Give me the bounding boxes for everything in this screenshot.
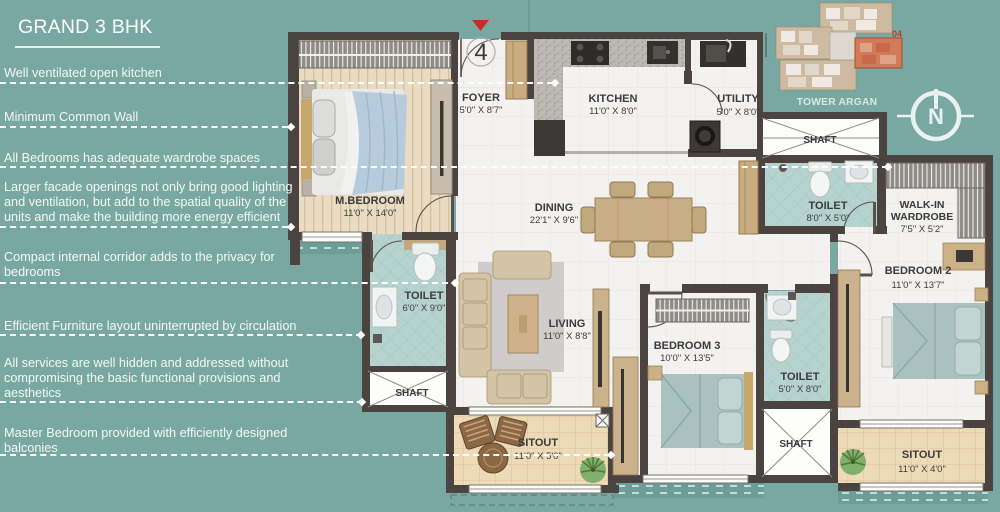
- svg-text:WARDROBE: WARDROBE: [891, 211, 953, 223]
- svg-text:11'0" X 13'7": 11'0" X 13'7": [892, 280, 945, 291]
- svg-text:TOILET: TOILET: [809, 200, 848, 212]
- svg-text:5'0" X 8'7": 5'0" X 8'7": [459, 105, 502, 116]
- svg-text:11'0" X 4'0": 11'0" X 4'0": [898, 464, 946, 475]
- svg-text:BEDROOM 3: BEDROOM 3: [654, 340, 721, 352]
- svg-text:7'5" X 5'2": 7'5" X 5'2": [900, 224, 943, 235]
- svg-text:UTILITY: UTILITY: [717, 93, 759, 105]
- svg-text:WALK-IN: WALK-IN: [900, 199, 945, 211]
- svg-text:10'0" X 13'5": 10'0" X 13'5": [660, 353, 714, 364]
- svg-text:DINING: DINING: [535, 202, 574, 214]
- svg-text:11'0" X 8'0": 11'0" X 8'0": [589, 106, 637, 117]
- svg-text:SHAFT: SHAFT: [803, 135, 836, 146]
- svg-text:11'0" X 8'8": 11'0" X 8'8": [543, 331, 591, 342]
- svg-text:LIVING: LIVING: [549, 318, 586, 330]
- svg-text:04: 04: [892, 29, 902, 39]
- svg-text:FOYER: FOYER: [462, 92, 500, 104]
- svg-text:SHAFT: SHAFT: [779, 439, 812, 450]
- svg-text:M.BEDROOM: M.BEDROOM: [335, 195, 405, 207]
- svg-text:5'0" X 8'0": 5'0" X 8'0": [716, 107, 759, 118]
- svg-text:8'0" X 5'0": 8'0" X 5'0": [806, 213, 849, 224]
- svg-text:6'0" X 9'0": 6'0" X 9'0": [402, 303, 445, 314]
- svg-text:TOWER ARGAN: TOWER ARGAN: [797, 97, 878, 108]
- svg-text:SITOUT: SITOUT: [518, 437, 558, 449]
- svg-text:11'0" X 14'0": 11'0" X 14'0": [344, 208, 397, 219]
- svg-text:N: N: [928, 104, 944, 129]
- svg-text:TOILET: TOILET: [405, 290, 444, 302]
- svg-text:BEDROOM 2: BEDROOM 2: [885, 265, 952, 277]
- svg-text:4: 4: [474, 39, 487, 66]
- svg-text:11'0" X 5'0": 11'0" X 5'0": [514, 451, 562, 462]
- svg-text:TOILET: TOILET: [781, 371, 820, 383]
- svg-text:5'0" X 8'0": 5'0" X 8'0": [778, 384, 821, 395]
- svg-text:SITOUT: SITOUT: [902, 449, 942, 461]
- svg-text:22'1" X 9'6": 22'1" X 9'6": [530, 215, 578, 226]
- svg-text:KITCHEN: KITCHEN: [589, 93, 638, 105]
- svg-text:SHAFT: SHAFT: [395, 388, 428, 399]
